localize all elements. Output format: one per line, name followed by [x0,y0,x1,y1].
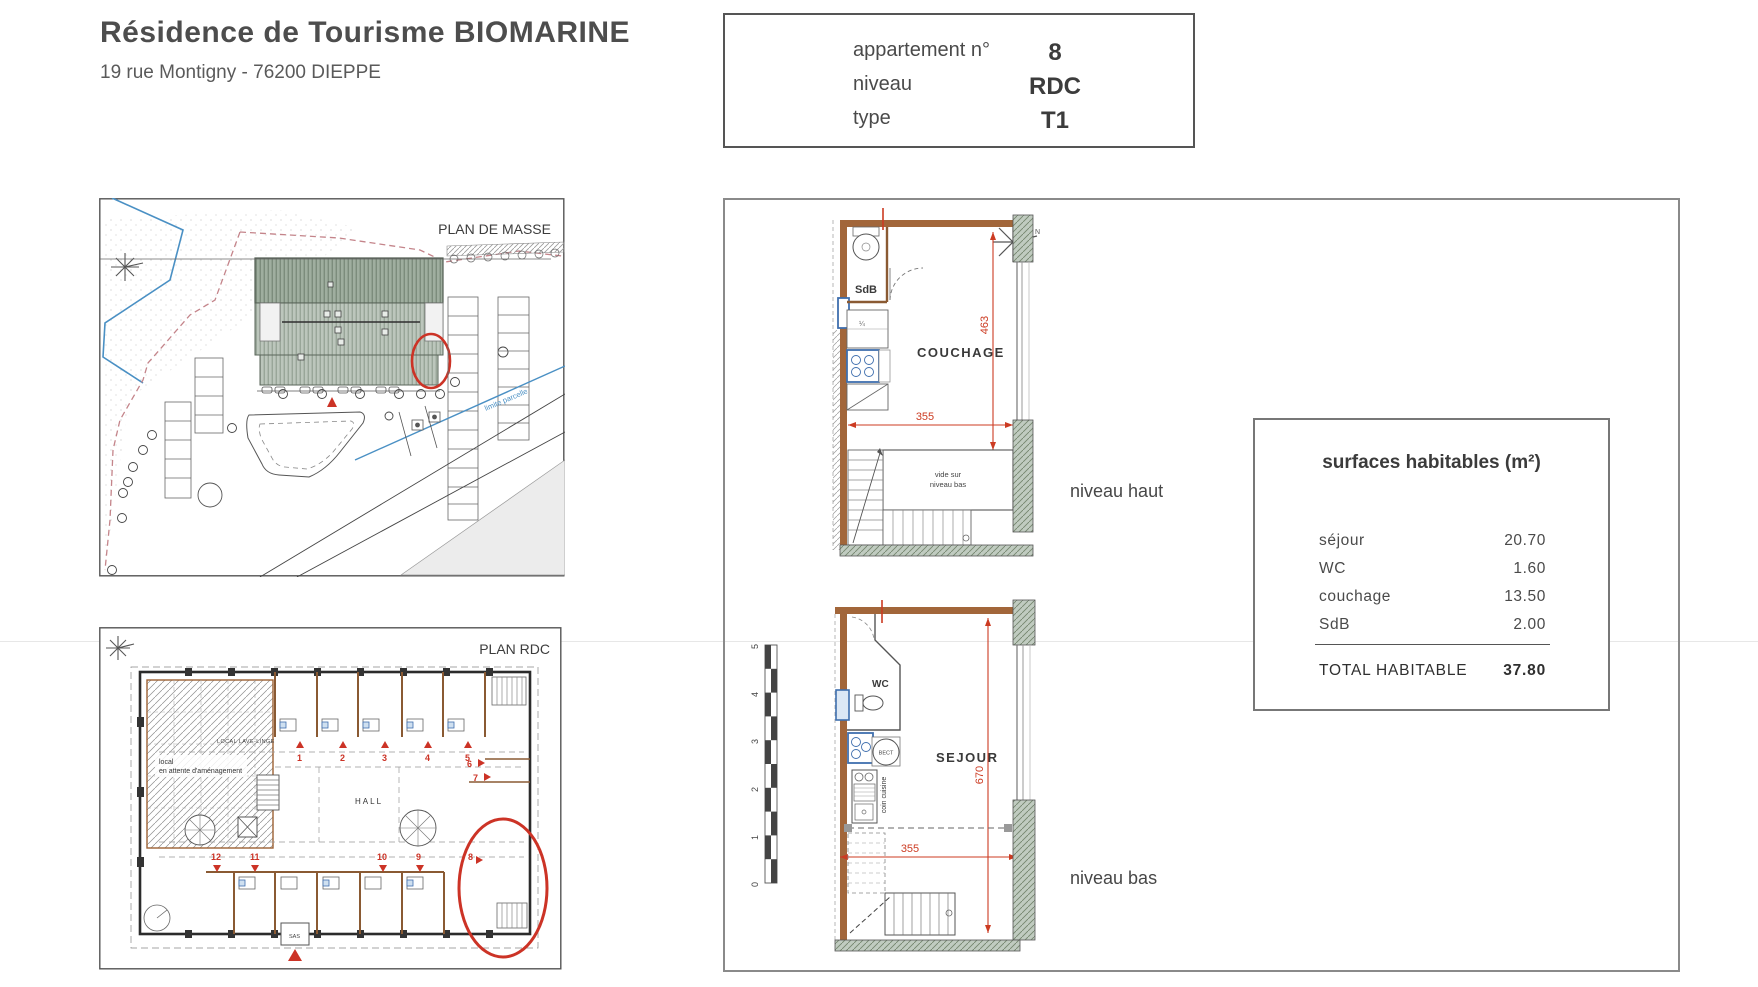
apartment-number: 8 [980,39,1130,67]
wc-room: WC [847,614,900,730]
info-label: niveau [853,73,912,96]
svg-text:1: 1 [297,753,302,763]
wall-left [840,614,847,940]
sas-label: SAS [289,934,300,940]
area-row: couchage 13.50 [1319,588,1546,612]
mezzanine-edge [844,824,1012,832]
info-row-apartment: appartement n° 8 [725,39,1193,72]
couchage-label: COUCHAGE [917,345,1005,360]
table-separator [1315,644,1550,645]
document-header: Résidence de Tourisme BIOMARINE 19 rue M… [100,16,630,84]
lower-level-plan-svg: 5 4 3 2 1 0 WC BECT [740,595,1080,985]
heater-label: BECT [879,751,894,757]
main-building [255,258,450,388]
area-value: 2.00 [1513,616,1546,634]
dimension-670: 670 [974,618,991,933]
info-label: type [853,107,891,130]
info-row-level: niveau RDC [725,73,1193,106]
kitchen-corner: BECT coin cuisine [848,733,900,823]
scanned-floorplan-document: { "header": { "title": "Résidence de Tou… [0,0,1758,987]
area-value: 1.60 [1513,560,1546,578]
wall-left [840,220,847,550]
svg-text:8: 8 [468,852,473,862]
svg-text:3: 3 [382,753,387,763]
svg-text:4: 4 [750,692,760,697]
entrance-sas: SAS [281,923,309,945]
type-value: T1 [980,107,1130,135]
ground-floor-plan-svg: PLAN RDC local en attente d'aménagement [99,627,562,970]
total-label: TOTAL HABITABLE [1319,662,1467,679]
sdb-label: SdB [855,284,877,296]
svg-text:0: 0 [750,882,760,887]
area-label: WC [1319,560,1346,577]
area-label: couchage [1319,588,1391,605]
sejour-label: SEJOUR [936,750,998,765]
svg-text:1: 1 [750,835,760,840]
dimension-355-bas: 355 [840,843,1017,860]
svg-text:5: 5 [750,644,760,649]
svg-text:6: 6 [467,759,472,769]
upper-level-label: niveau haut [1070,481,1163,502]
dimension-463: 463 [979,232,996,450]
lower-level-label: niveau bas [1070,868,1157,889]
total-row: TOTAL HABITABLE 37.80 [1319,662,1546,680]
east-wall [1013,215,1033,532]
wall-top [835,607,1015,614]
svg-text:2: 2 [750,787,760,792]
pending-zone-label-1: local [159,759,174,766]
areas-table: surfaces habitables (m²) séjour 20.70 WC… [1253,418,1610,711]
wall-bottom [840,545,1033,556]
hall-label: HALL [355,797,383,806]
svg-text:12: 12 [211,852,221,862]
east-wall [1013,600,1035,940]
area-value: 20.70 [1504,532,1546,550]
svg-text:670: 670 [974,766,986,784]
svg-text:¼: ¼ [859,321,865,328]
svg-text:9: 9 [416,852,421,862]
void-area: vide sur niveau bas [883,450,1013,510]
pending-zone-label-2: en attente d'aménagement [159,768,242,775]
kitchen-label: coin cuisine [881,777,888,814]
total-value: 37.80 [1503,662,1546,680]
bathroom-sdb: SdB [847,227,923,302]
apartment-info-box: appartement n° 8 niveau RDC type T1 [723,13,1195,148]
svg-text:10: 10 [377,852,387,862]
areas-table-title: surfaces habitables (m²) [1255,452,1608,474]
page-title: Résidence de Tourisme BIOMARINE [100,16,630,50]
area-row: WC 1.60 [1319,560,1546,584]
scale-bar: 5 4 3 2 1 0 [750,644,777,887]
svg-text:355: 355 [916,411,934,423]
area-row: séjour 20.70 [1319,532,1546,556]
wall-insulation [833,330,840,550]
wall-appliance [836,690,849,720]
void-label-1: vide sur [935,470,962,479]
level-value: RDC [980,73,1130,101]
area-label: SdB [1319,616,1350,633]
upper-level-plan-svg: SdB ¼ COUCHAGE 463 355 vide sur niveau b… [825,180,1040,580]
laundry-label: LOCAL LAVE-LINGE [217,739,275,745]
svg-text:355: 355 [901,843,919,855]
dimension-355-haut: 355 [848,411,1013,428]
void-label-2: niveau bas [930,480,967,489]
info-row-type: type T1 [725,107,1193,140]
address-line: 19 rue Montigny - 76200 DIEPPE [100,62,630,84]
area-label: séjour [1319,532,1365,549]
svg-text:3: 3 [750,739,760,744]
wall-top [840,220,1013,227]
wall-bottom [835,940,1020,951]
svg-text:7: 7 [473,773,478,783]
area-value: 13.50 [1504,588,1546,606]
site-plan-svg: PLAN DE MASSE [99,198,565,577]
floor-plan-title: PLAN RDC [479,641,550,657]
kitchen-blocks: ¼ [847,310,890,410]
wc-label: WC [872,679,889,690]
area-row: SdB 2.00 [1319,616,1546,640]
info-label: appartement n° [853,39,990,62]
svg-text:463: 463 [979,316,991,334]
svg-text:4: 4 [425,753,430,763]
svg-text:11: 11 [250,852,260,862]
site-plan-title: PLAN DE MASSE [438,221,551,237]
svg-text:2: 2 [340,753,345,763]
